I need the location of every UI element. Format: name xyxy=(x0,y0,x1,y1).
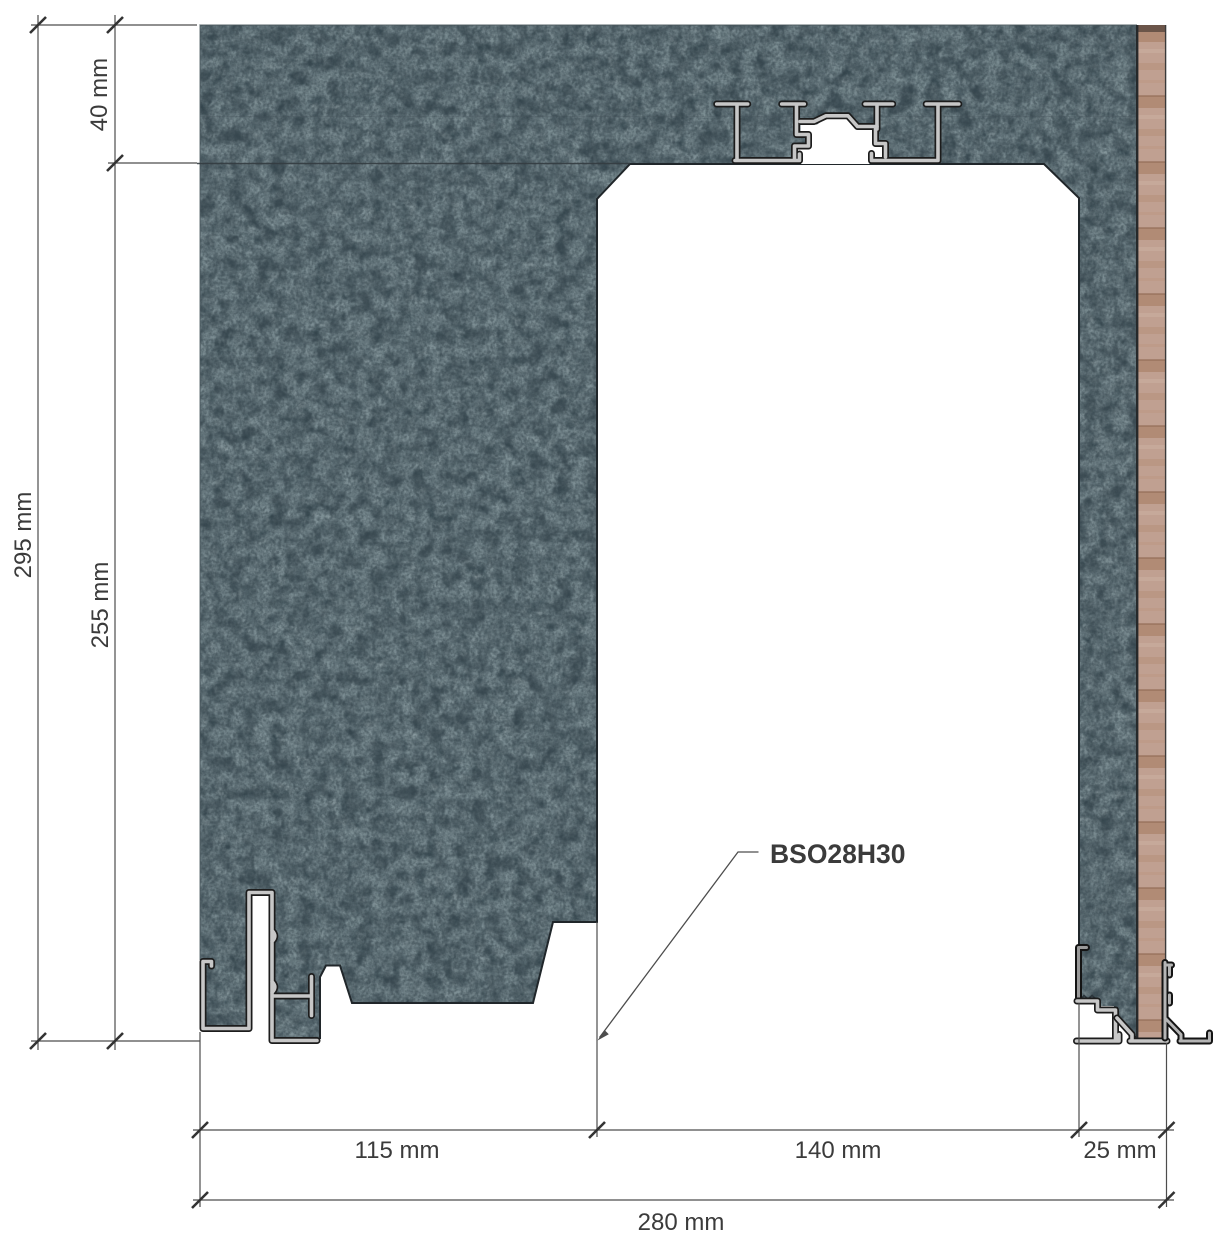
svg-text:40 mm: 40 mm xyxy=(86,58,113,131)
svg-text:140 mm: 140 mm xyxy=(795,1137,882,1164)
svg-text:295 mm: 295 mm xyxy=(10,492,37,579)
svg-text:BSO28H30: BSO28H30 xyxy=(770,839,906,869)
svg-text:255 mm: 255 mm xyxy=(87,562,114,649)
svg-text:115 mm: 115 mm xyxy=(355,1137,440,1164)
svg-text:25 mm: 25 mm xyxy=(1083,1137,1156,1164)
svg-text:280 mm: 280 mm xyxy=(638,1209,725,1236)
